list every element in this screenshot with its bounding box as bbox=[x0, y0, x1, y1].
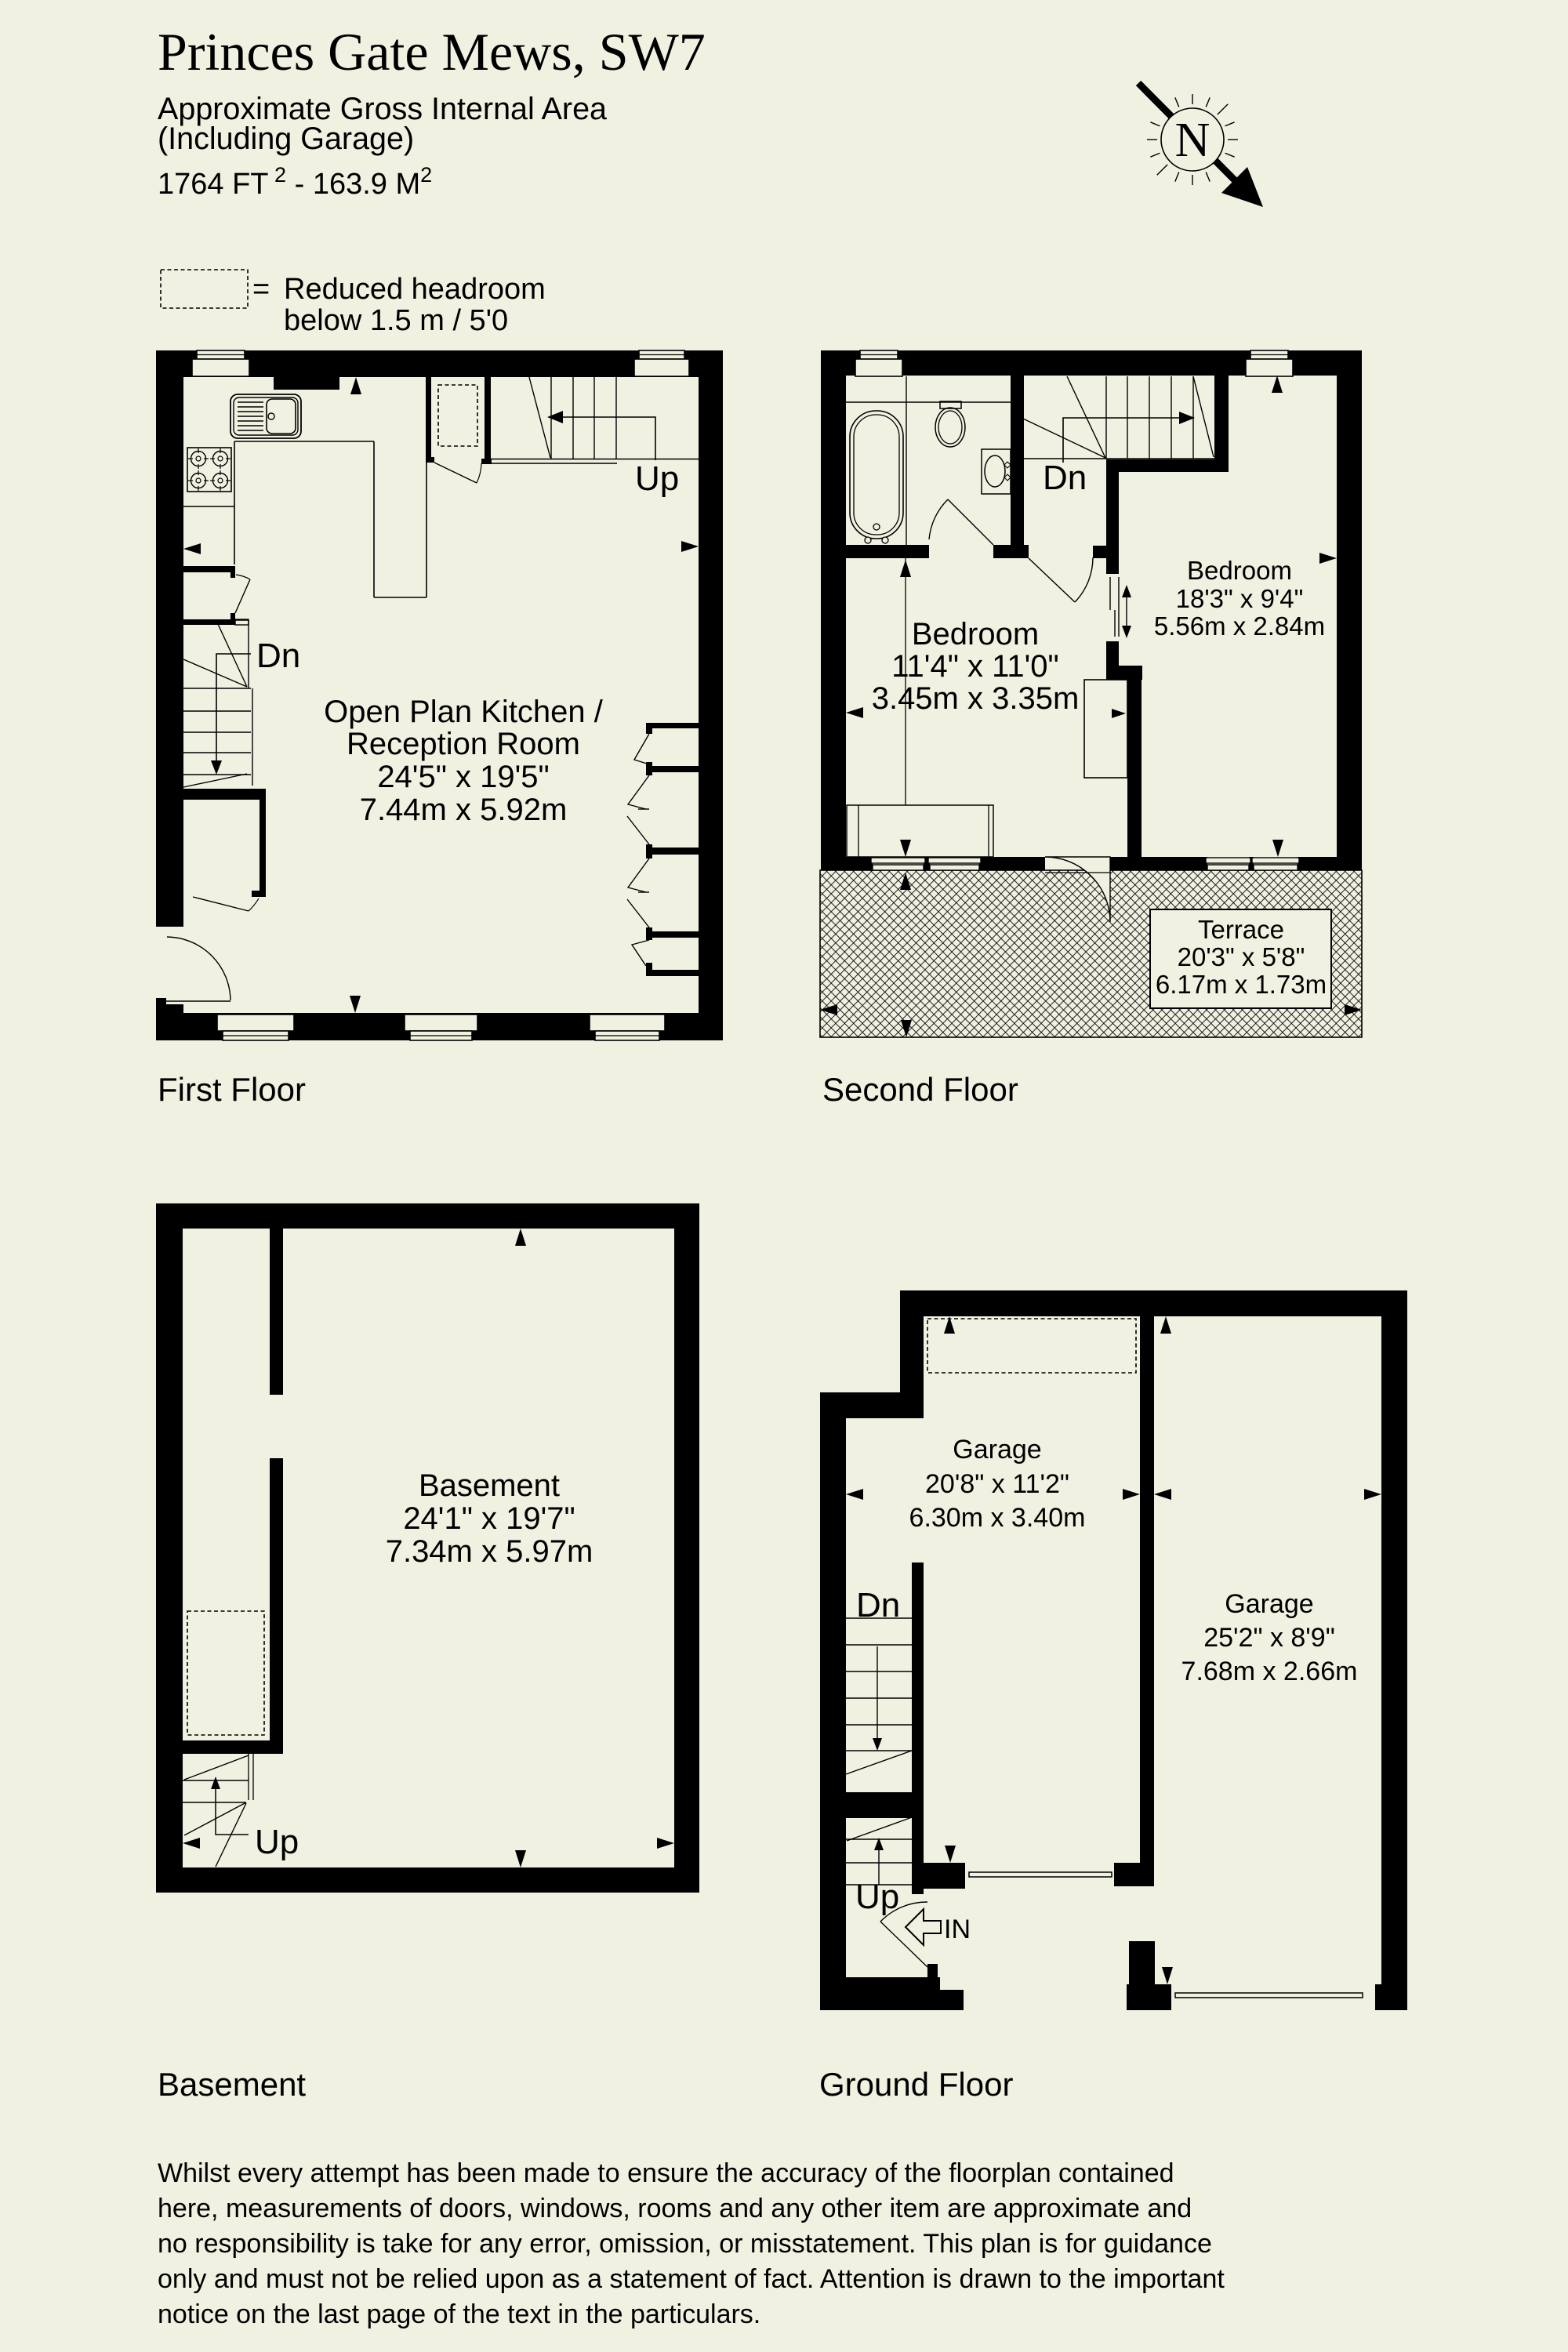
svg-text:IN: IN bbox=[944, 1915, 971, 1944]
svg-text:Garage: Garage bbox=[1225, 1589, 1313, 1619]
svg-text:25'2" x 8'9": 25'2" x 8'9" bbox=[1203, 1623, 1335, 1653]
svg-text:=: = bbox=[252, 273, 270, 306]
svg-text:Princes Gate Mews, SW7: Princes Gate Mews, SW7 bbox=[158, 22, 706, 82]
svg-text:notice on the last page of the: notice on the last page of the text in t… bbox=[158, 2299, 760, 2329]
svg-text:(Including Garage): (Including Garage) bbox=[158, 122, 414, 156]
svg-text:Terrace: Terrace bbox=[1198, 915, 1284, 944]
svg-text:Up: Up bbox=[635, 459, 679, 498]
svg-text:Whilst every attempt has been: Whilst every attempt has been made to en… bbox=[158, 2158, 1174, 2188]
svg-text:Reception Room: Reception Room bbox=[347, 727, 580, 761]
svg-text:6.17m x 1.73m: 6.17m x 1.73m bbox=[1156, 970, 1327, 999]
svg-text:Up: Up bbox=[255, 1823, 299, 1861]
svg-text:Bedroom: Bedroom bbox=[1187, 556, 1292, 585]
svg-text:Reduced headroom: Reduced headroom bbox=[284, 273, 546, 306]
svg-text:20'8" x 11'2": 20'8" x 11'2" bbox=[925, 1469, 1069, 1499]
svg-text:Open Plan Kitchen /: Open Plan Kitchen / bbox=[324, 695, 604, 729]
svg-text:Ground Floor: Ground Floor bbox=[819, 2066, 1013, 2103]
svg-text:24'1" x 19'7": 24'1" x 19'7" bbox=[403, 1501, 575, 1536]
svg-text:5.56m x 2.84m: 5.56m x 2.84m bbox=[1154, 612, 1325, 641]
svg-text:1764 FT 2 - 163.9 M2: 1764 FT 2 - 163.9 M2 bbox=[158, 163, 432, 201]
svg-text:3.45m x 3.35m: 3.45m x 3.35m bbox=[872, 681, 1080, 716]
svg-text:Up: Up bbox=[855, 1878, 899, 1916]
svg-text:11'4" x 11'0": 11'4" x 11'0" bbox=[891, 649, 1058, 684]
svg-text:Garage: Garage bbox=[953, 1435, 1041, 1465]
svg-text:7.68m x 2.66m: 7.68m x 2.66m bbox=[1181, 1657, 1358, 1686]
svg-text:Dn: Dn bbox=[1043, 459, 1087, 497]
svg-text:Dn: Dn bbox=[856, 1586, 900, 1624]
svg-text:Basement: Basement bbox=[158, 2066, 306, 2103]
svg-text:no responsibility is take for: no responsibility is take for any error,… bbox=[158, 2229, 1212, 2259]
svg-text:18'3" x 9'4": 18'3" x 9'4" bbox=[1176, 584, 1304, 613]
svg-text:First Floor: First Floor bbox=[158, 1071, 306, 1108]
svg-text:20'3" x 5'8": 20'3" x 5'8" bbox=[1178, 942, 1305, 971]
svg-text:6.30m x 3.40m: 6.30m x 3.40m bbox=[909, 1503, 1086, 1533]
svg-text:only and must not be relied up: only and must not be relied upon as a st… bbox=[158, 2264, 1225, 2294]
svg-text:Basement: Basement bbox=[419, 1468, 560, 1503]
svg-text:7.34m x 5.97m: 7.34m x 5.97m bbox=[386, 1534, 593, 1569]
svg-text:N: N bbox=[1175, 114, 1210, 167]
svg-text:Dn: Dn bbox=[256, 637, 300, 675]
svg-text:Second Floor: Second Floor bbox=[822, 1071, 1018, 1108]
svg-text:Bedroom: Bedroom bbox=[912, 617, 1039, 652]
svg-text:24'5" x 19'5": 24'5" x 19'5" bbox=[377, 760, 549, 794]
svg-text:7.44m x 5.92m: 7.44m x 5.92m bbox=[360, 793, 568, 827]
svg-text:here, measurements of doors, w: here, measurements of doors, windows, ro… bbox=[158, 2194, 1192, 2223]
svg-text:below 1.5 m / 5'0: below 1.5 m / 5'0 bbox=[284, 304, 508, 337]
